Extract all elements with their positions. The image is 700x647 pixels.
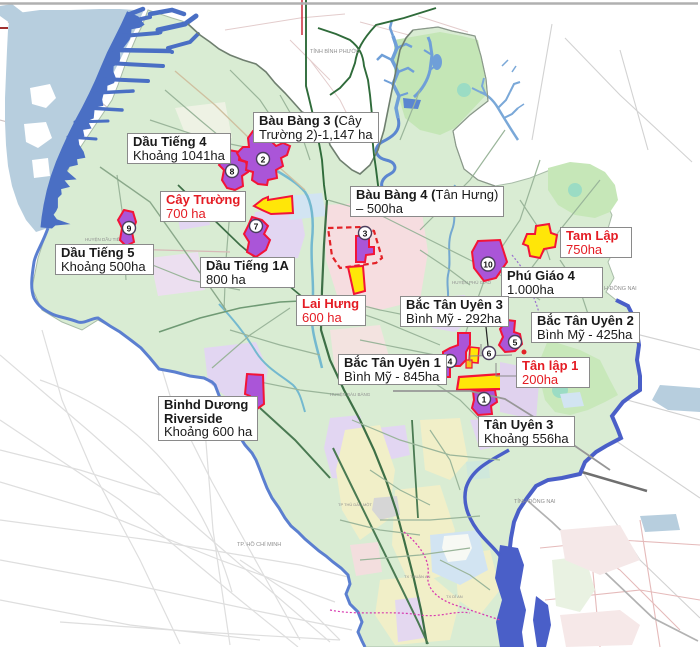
svg-text:1: 1 bbox=[482, 395, 487, 405]
svg-text:3: 3 bbox=[363, 229, 368, 239]
svg-text:TP. HỒ CHÍ MINH: TP. HỒ CHÍ MINH bbox=[237, 541, 281, 548]
svg-text:TỈNH ĐỒNG NAI: TỈNH ĐỒNG NAI bbox=[514, 498, 556, 505]
svg-text:10: 10 bbox=[483, 260, 493, 270]
svg-text:H ĐỒNG NAI: H ĐỒNG NAI bbox=[604, 285, 637, 292]
svg-text:HUYỆN BÀU BÀNG: HUYỆN BÀU BÀNG bbox=[330, 390, 371, 397]
svg-text:TP THỦ DẦU MỘT: TP THỦ DẦU MỘT bbox=[338, 502, 372, 507]
svg-text:TX DĨ AN: TX DĨ AN bbox=[446, 594, 463, 599]
svg-text:5: 5 bbox=[513, 338, 518, 348]
svg-text:7: 7 bbox=[254, 222, 259, 232]
svg-text:4: 4 bbox=[448, 357, 453, 367]
svg-text:2: 2 bbox=[261, 155, 266, 165]
svg-text:9: 9 bbox=[127, 224, 132, 234]
svg-text:8: 8 bbox=[230, 167, 235, 177]
svg-text:TỈNH BÌNH PHƯỚC: TỈNH BÌNH PHƯỚC bbox=[310, 48, 360, 55]
svg-text:6: 6 bbox=[487, 349, 492, 359]
svg-text:TX THUẬN AN: TX THUẬN AN bbox=[404, 574, 430, 579]
